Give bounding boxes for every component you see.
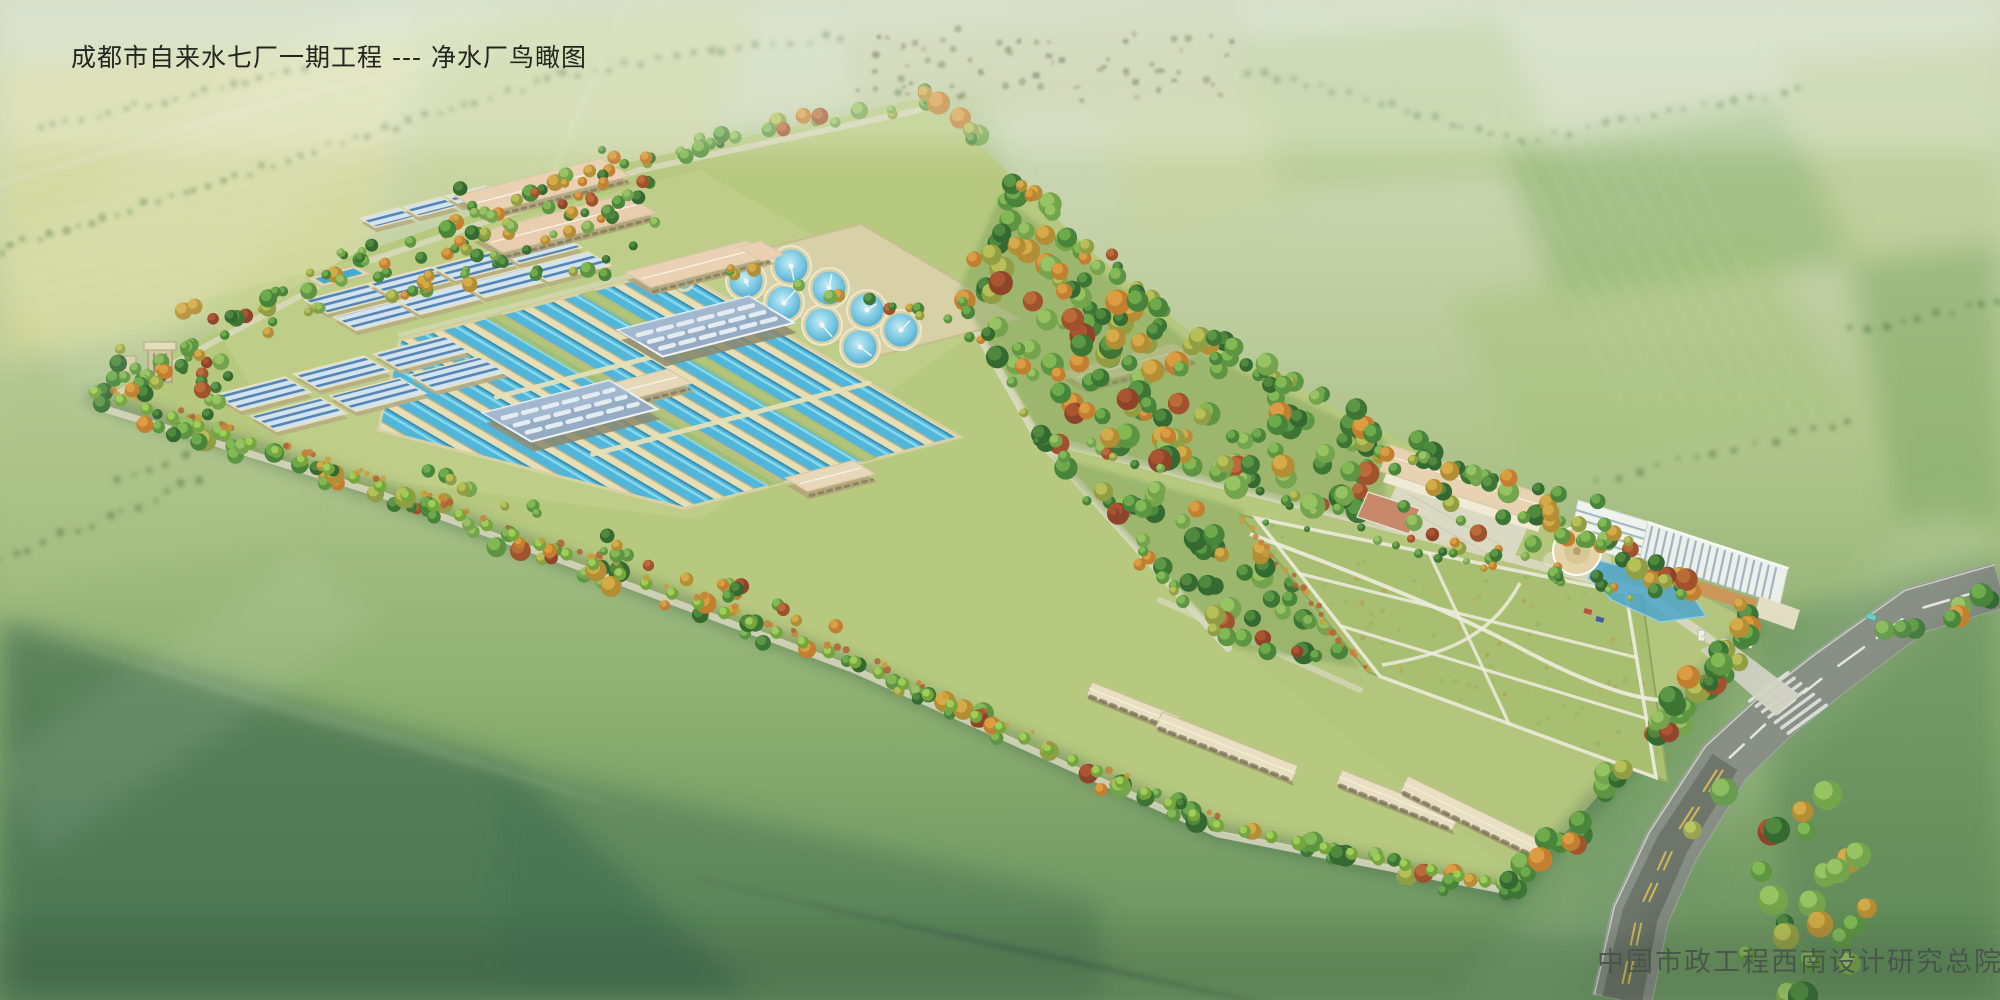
aerial-rendering: 成都市自来水七厂一期工程 --- 净水厂鸟瞰图 中国市政工程西南设计研究总院	[0, 0, 2000, 1000]
scene-svg	[0, 0, 2000, 1000]
haze-overlay	[0, 0, 2000, 1000]
design-institute-credit: 中国市政工程西南设计研究总院	[1597, 940, 2000, 979]
drawing-title: 成都市自来水七厂一期工程 --- 净水厂鸟瞰图	[71, 38, 587, 74]
